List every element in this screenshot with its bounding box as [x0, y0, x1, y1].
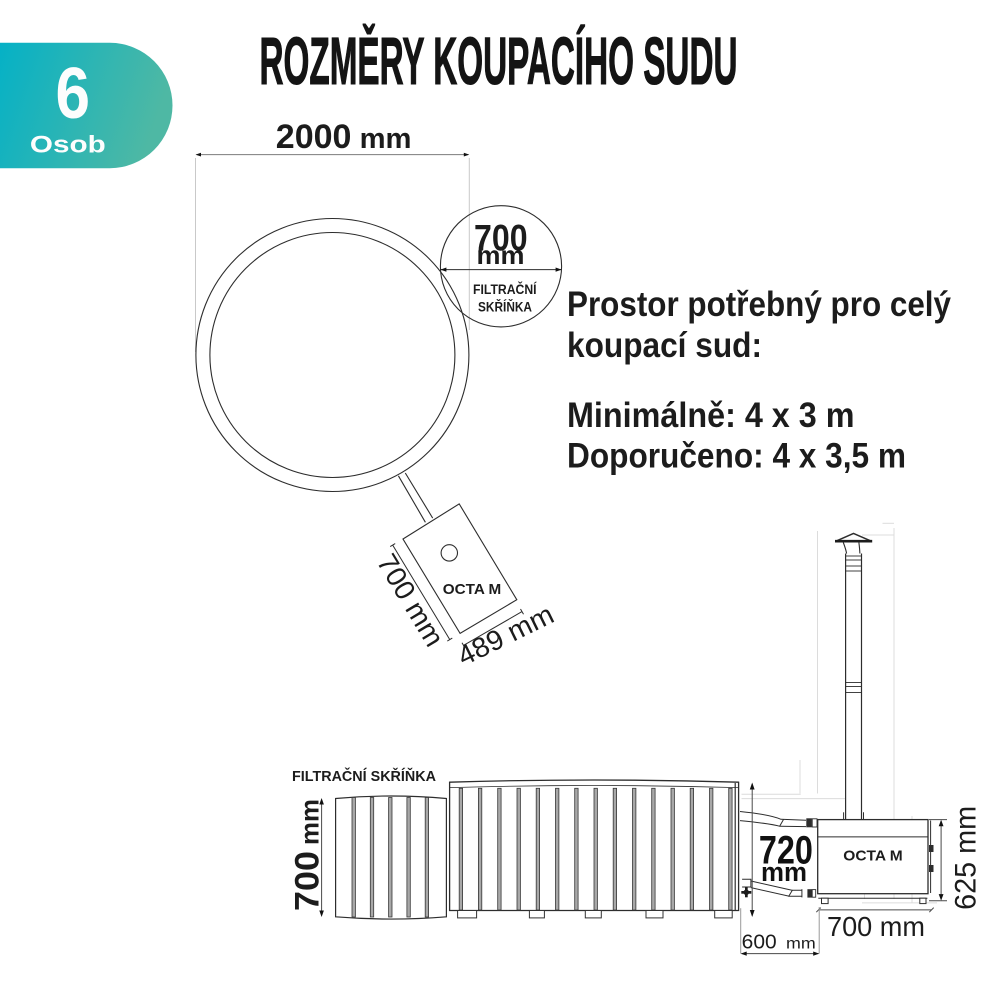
svg-text:Prostor potřebný pro celý: Prostor potřebný pro celý [567, 285, 951, 324]
svg-text:Minimálně: 4 x 3 m: Minimálně: 4 x 3 m [567, 396, 855, 435]
svg-text:mm: mm [786, 936, 816, 953]
svg-text:ROZMĚRY KOUPACÍHO SUDU: ROZMĚRY KOUPACÍHO SUDU [260, 24, 738, 99]
svg-text:700: 700 [289, 851, 327, 911]
svg-text:OCTA M: OCTA M [843, 848, 903, 865]
svg-text:mm: mm [477, 240, 525, 270]
svg-text:FILTRAČNÍ: FILTRAČNÍ [473, 280, 537, 298]
svg-text:6: 6 [55, 54, 90, 134]
svg-text:2000: 2000 [276, 118, 352, 156]
svg-text:600: 600 [742, 932, 777, 954]
svg-text:Doporučeno: 4 x 3,5 m: Doporučeno: 4 x 3,5 m [567, 437, 906, 476]
svg-text:mm: mm [761, 857, 807, 887]
svg-text:OCTA M: OCTA M [443, 581, 502, 598]
svg-text:FILTRAČNÍ SKŘÍŇKA: FILTRAČNÍ SKŘÍŇKA [292, 767, 437, 785]
svg-text:mm: mm [360, 123, 412, 155]
svg-text:koupací sud:: koupací sud: [567, 326, 762, 365]
svg-text:Osob: Osob [30, 130, 106, 158]
svg-text:700 mm: 700 mm [827, 911, 925, 942]
svg-text:625 mm: 625 mm [949, 806, 982, 910]
svg-text:mm: mm [295, 799, 325, 845]
svg-text:SKŘÍŇKA: SKŘÍŇKA [478, 297, 532, 315]
